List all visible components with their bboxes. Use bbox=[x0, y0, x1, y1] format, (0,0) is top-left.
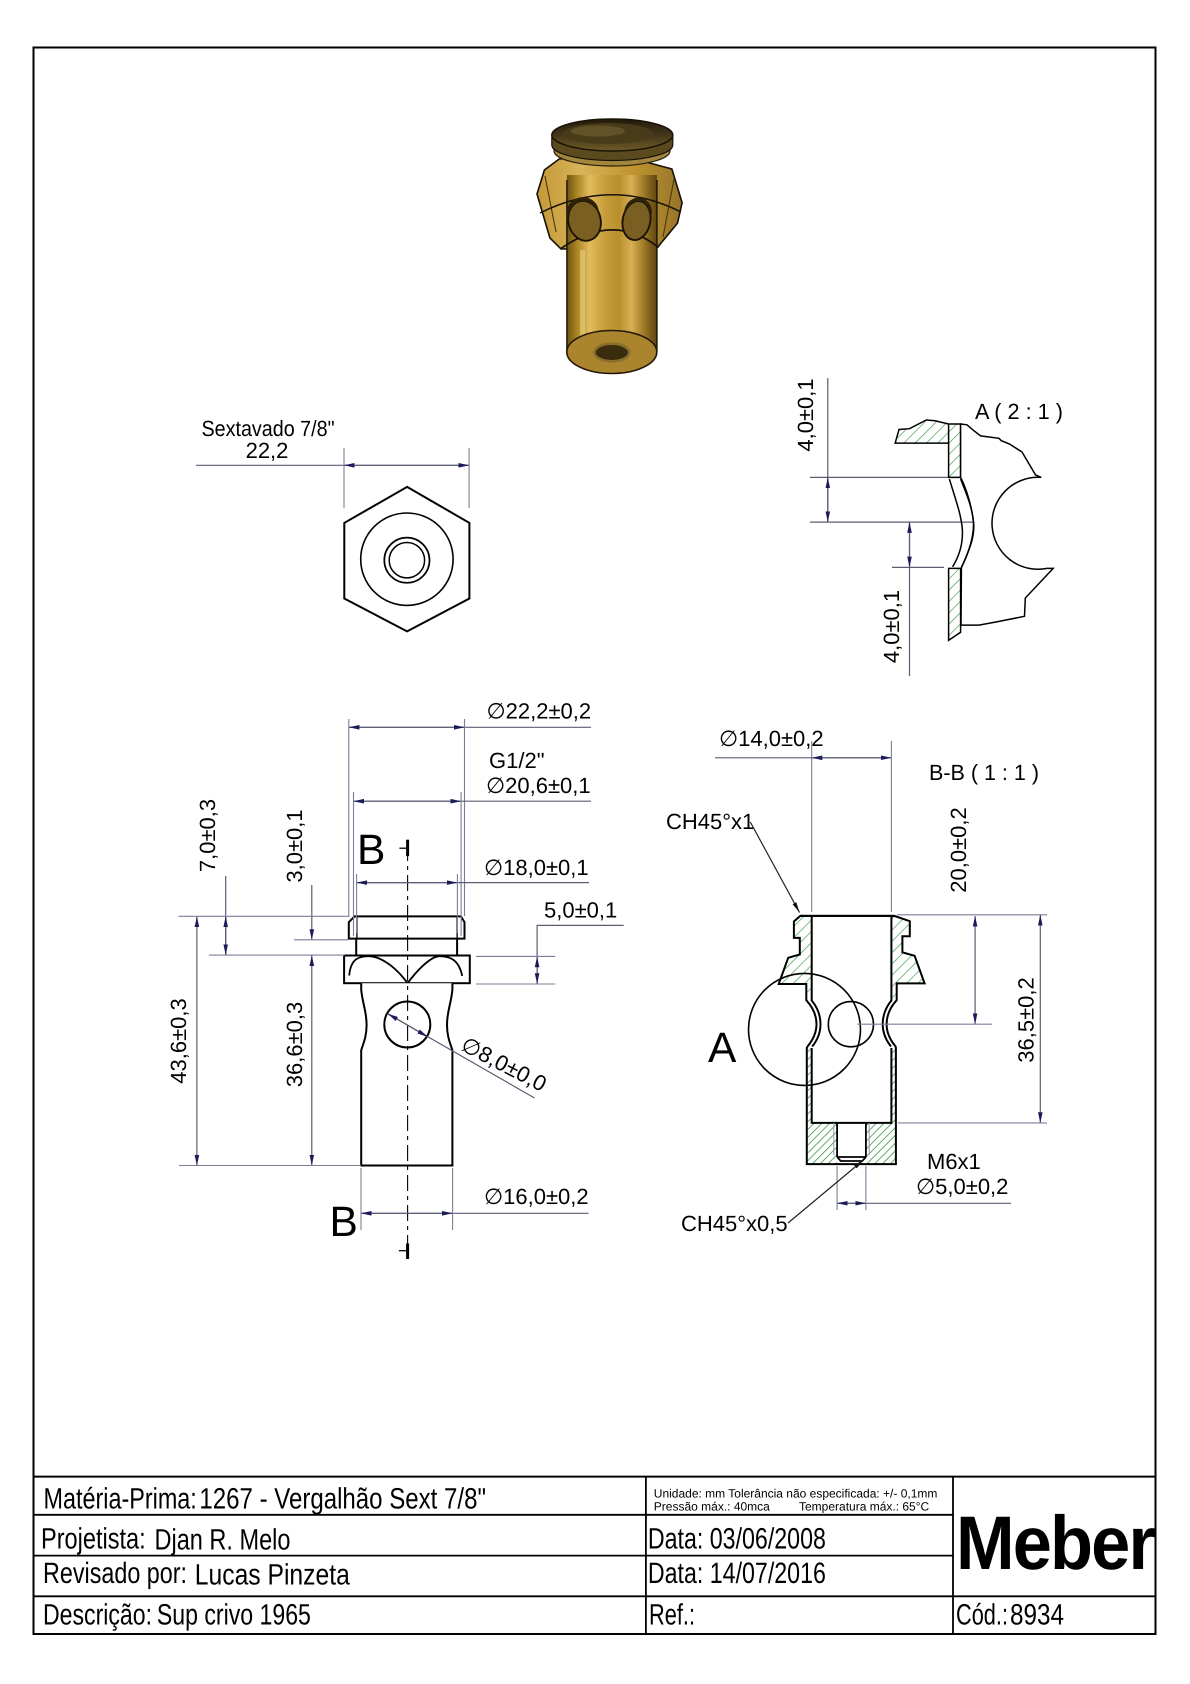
svg-text:Projetista:: Projetista: bbox=[41, 1523, 146, 1556]
svg-text:Ref.:: Ref.: bbox=[649, 1599, 695, 1632]
svg-text:∅20,6±0,1: ∅20,6±0,1 bbox=[486, 773, 591, 798]
svg-text:∅16,0±0,2: ∅16,0±0,2 bbox=[484, 1184, 589, 1209]
svg-text:5,0±0,1: 5,0±0,1 bbox=[544, 898, 617, 923]
svg-text:B: B bbox=[357, 827, 385, 874]
svg-text:A ( 2 : 1 ): A ( 2 : 1 ) bbox=[975, 399, 1063, 424]
svg-text:∅5,0±0,2: ∅5,0±0,2 bbox=[916, 1174, 1008, 1199]
svg-text:Revisado por:: Revisado por: bbox=[43, 1557, 187, 1590]
svg-text:7,0±0,3: 7,0±0,3 bbox=[195, 799, 220, 872]
svg-text:36,5±0,2: 36,5±0,2 bbox=[1014, 977, 1039, 1062]
svg-text:Sup crivo 1965: Sup crivo 1965 bbox=[157, 1599, 311, 1632]
svg-text:Data: 14/07/2016: Data: 14/07/2016 bbox=[648, 1557, 826, 1590]
svg-text:G1/2": G1/2" bbox=[489, 748, 545, 773]
svg-text:Djan R. Melo: Djan R. Melo bbox=[155, 1524, 291, 1557]
svg-text:36,6±0,3: 36,6±0,3 bbox=[282, 1002, 307, 1087]
svg-text:4,0±0,1: 4,0±0,1 bbox=[879, 590, 904, 663]
svg-text:3,0±0,1: 3,0±0,1 bbox=[282, 809, 307, 882]
svg-text:Unidade: mm Tolerância não esp: Unidade: mm Tolerância não especificada:… bbox=[654, 1487, 938, 1501]
svg-text:∅18,0±0,1: ∅18,0±0,1 bbox=[484, 855, 589, 880]
svg-text:Lucas Pinzeta: Lucas Pinzeta bbox=[195, 1559, 350, 1592]
svg-text:Cód.:: Cód.: bbox=[956, 1599, 1008, 1632]
svg-text:Matéria-Prima:: Matéria-Prima: bbox=[44, 1483, 197, 1516]
svg-text:Descrição:: Descrição: bbox=[43, 1599, 152, 1632]
svg-text:CH45°x1: CH45°x1 bbox=[666, 809, 754, 834]
svg-text:∅22,2±0,2: ∅22,2±0,2 bbox=[487, 699, 592, 724]
svg-text:43,6±0,3: 43,6±0,3 bbox=[166, 998, 191, 1083]
svg-text:Temperatura máx.: 65°C: Temperatura máx.: 65°C bbox=[799, 1500, 930, 1514]
svg-text:B-B ( 1 : 1 ): B-B ( 1 : 1 ) bbox=[929, 760, 1039, 785]
svg-text:A: A bbox=[708, 1025, 737, 1072]
svg-text:1267 - Vergalhão Sext 7/8": 1267 - Vergalhão Sext 7/8" bbox=[199, 1483, 486, 1516]
svg-text:B: B bbox=[330, 1199, 358, 1246]
svg-text:Data: 03/06/2008: Data: 03/06/2008 bbox=[648, 1523, 826, 1556]
svg-text:M6x1: M6x1 bbox=[927, 1149, 981, 1174]
svg-text:8934: 8934 bbox=[1010, 1599, 1064, 1632]
svg-text:Pressão máx.: 40mca: Pressão máx.: 40mca bbox=[654, 1500, 770, 1514]
svg-text:22,2: 22,2 bbox=[246, 438, 289, 463]
svg-text:∅14,0±0,2: ∅14,0±0,2 bbox=[719, 726, 824, 751]
svg-text:20,0±0,2: 20,0±0,2 bbox=[946, 807, 971, 892]
svg-text:CH45°x0,5: CH45°x0,5 bbox=[681, 1211, 788, 1236]
svg-text:Meber: Meber bbox=[956, 1501, 1155, 1586]
svg-text:4,0±0,1: 4,0±0,1 bbox=[793, 378, 818, 451]
